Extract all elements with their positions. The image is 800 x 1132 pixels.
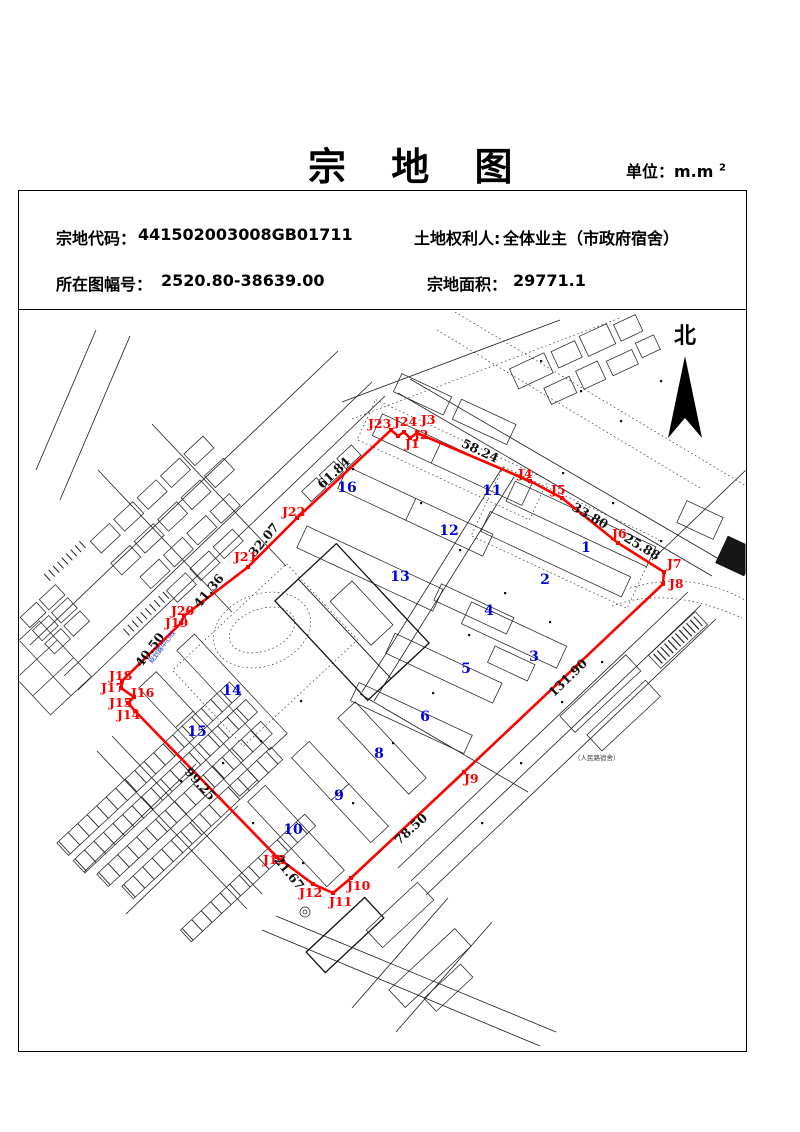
slab-6 (351, 683, 473, 754)
distance-label: 21.67 (271, 853, 307, 893)
boundary-point-label: J24 (393, 414, 418, 429)
building-bottom-3 (389, 929, 488, 1025)
tick-row-1 (126, 592, 170, 633)
terraced-strips (57, 682, 293, 911)
boundary-point-label: J23 (367, 416, 391, 431)
boundary-point-label: J5 (550, 482, 566, 497)
building-number: 1 (581, 540, 591, 556)
dark-building (715, 536, 757, 577)
boundary-point-label: J8 (668, 576, 684, 591)
building-number: 8 (374, 746, 384, 762)
distance-label: 41.36 (190, 571, 227, 611)
hatched-block (0, 621, 91, 715)
building-number: 3 (529, 649, 539, 665)
building-number: 16 (337, 480, 356, 496)
boundary-point-label: J3 (420, 412, 436, 427)
building-number: 6 (420, 709, 430, 725)
boundary-point-label: J2 (413, 427, 429, 442)
tick-row-2 (47, 542, 85, 577)
parcel-overlay: J1J2J3J4J5J6J7J8J9J10J11J12J13J14J15J16J… (100, 412, 684, 909)
boundary-point-label: J16 (130, 685, 155, 700)
distance-label: 33.80 (570, 499, 612, 532)
housing-cluster-left-edge (20, 585, 89, 654)
boundary-point-label: J22 (281, 504, 305, 519)
building-number: 13 (390, 569, 409, 585)
boundary-point-label: J15 (108, 695, 132, 710)
distance-label: 131.90 (545, 655, 590, 699)
building-number: 2 (540, 572, 550, 588)
boundary-point-label: J9 (463, 771, 479, 786)
slab-5 (386, 633, 502, 703)
boundary-point-label: J4 (517, 466, 533, 481)
boundary-point-label: J7 (666, 556, 682, 571)
slab-12 (338, 467, 493, 556)
slab-4 (434, 584, 514, 634)
boundary-point-label: J20 (170, 603, 195, 618)
building-number: 4 (484, 603, 494, 619)
boundary-vertex (396, 434, 400, 438)
building-number: 5 (461, 661, 471, 677)
distance-label: 99.25 (182, 764, 219, 803)
boundary-point-label: J11 (328, 894, 352, 909)
north-arrow-icon (650, 350, 720, 446)
distance-label: 78.50 (391, 810, 430, 848)
parcel-map-sheet: 宗 地 图 单位：m.m 2 宗地代码： 441502003008GB01711… (0, 0, 800, 1132)
building-right (677, 501, 723, 540)
tiny-map-label: （人民路宿舍） (574, 753, 620, 762)
boundary-vertex (246, 565, 250, 569)
boundary-vertex (662, 570, 666, 574)
boundary-vertex (616, 541, 620, 545)
building-number: 9 (334, 788, 344, 804)
building-number: 14 (222, 683, 242, 699)
building-bottom-2 (366, 882, 434, 947)
slabs-top-mid (393, 372, 516, 445)
building-number: 10 (283, 822, 303, 838)
cluster-top-right (509, 308, 662, 415)
boundary-point-label: J18 (108, 668, 133, 683)
building-number: 12 (439, 523, 458, 539)
north-indicator: 北 (650, 318, 720, 450)
cadastral-map: J1J2J3J4J5J6J7J8J9J10J11J12J13J14J15J16J… (0, 0, 800, 1132)
slab-13 (297, 526, 443, 611)
hatched-strip (648, 612, 707, 669)
boundary-vertex (661, 582, 665, 586)
north-label: 北 (650, 318, 720, 350)
building-number: 11 (482, 483, 501, 499)
building-number: 15 (187, 724, 206, 740)
boundary-point-label: J10 (346, 878, 371, 893)
boundary-vertex (402, 430, 406, 434)
